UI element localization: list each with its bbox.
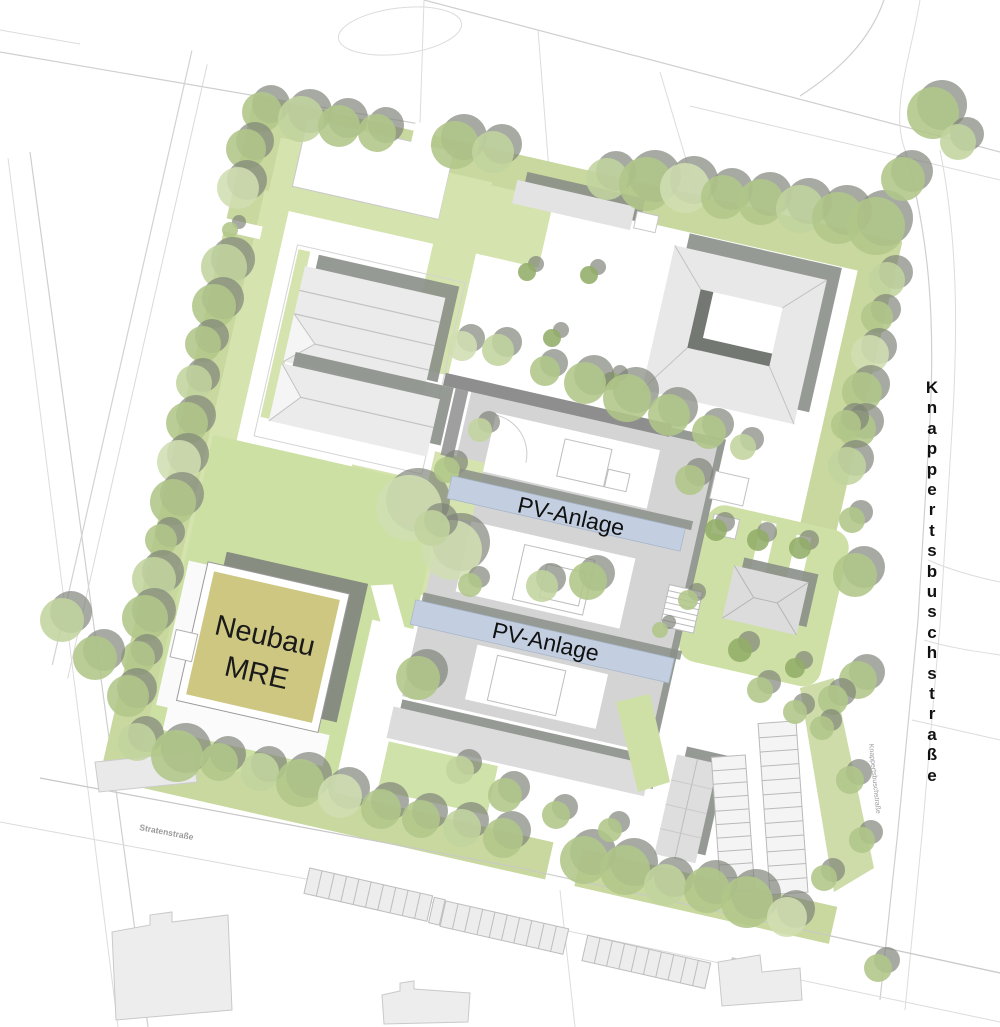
svg-text:p: p — [927, 439, 937, 458]
svg-text:e: e — [927, 480, 936, 499]
svg-text:t: t — [929, 684, 935, 703]
svg-text:K: K — [926, 378, 939, 397]
svg-text:s: s — [927, 602, 936, 621]
svg-text:s: s — [927, 664, 936, 683]
svg-text:t: t — [929, 521, 935, 540]
svg-text:r: r — [929, 704, 936, 723]
svg-text:n: n — [927, 398, 937, 417]
svg-text:c: c — [927, 623, 936, 642]
svg-text:ß: ß — [927, 745, 937, 764]
svg-text:a: a — [927, 419, 937, 438]
svg-text:e: e — [927, 766, 936, 785]
svg-text:s: s — [927, 541, 936, 560]
svg-text:b: b — [927, 562, 937, 581]
svg-text:u: u — [927, 582, 937, 601]
svg-text:r: r — [929, 500, 936, 519]
svg-text:a: a — [927, 725, 937, 744]
svg-text:h: h — [927, 643, 937, 662]
svg-text:p: p — [927, 460, 937, 479]
